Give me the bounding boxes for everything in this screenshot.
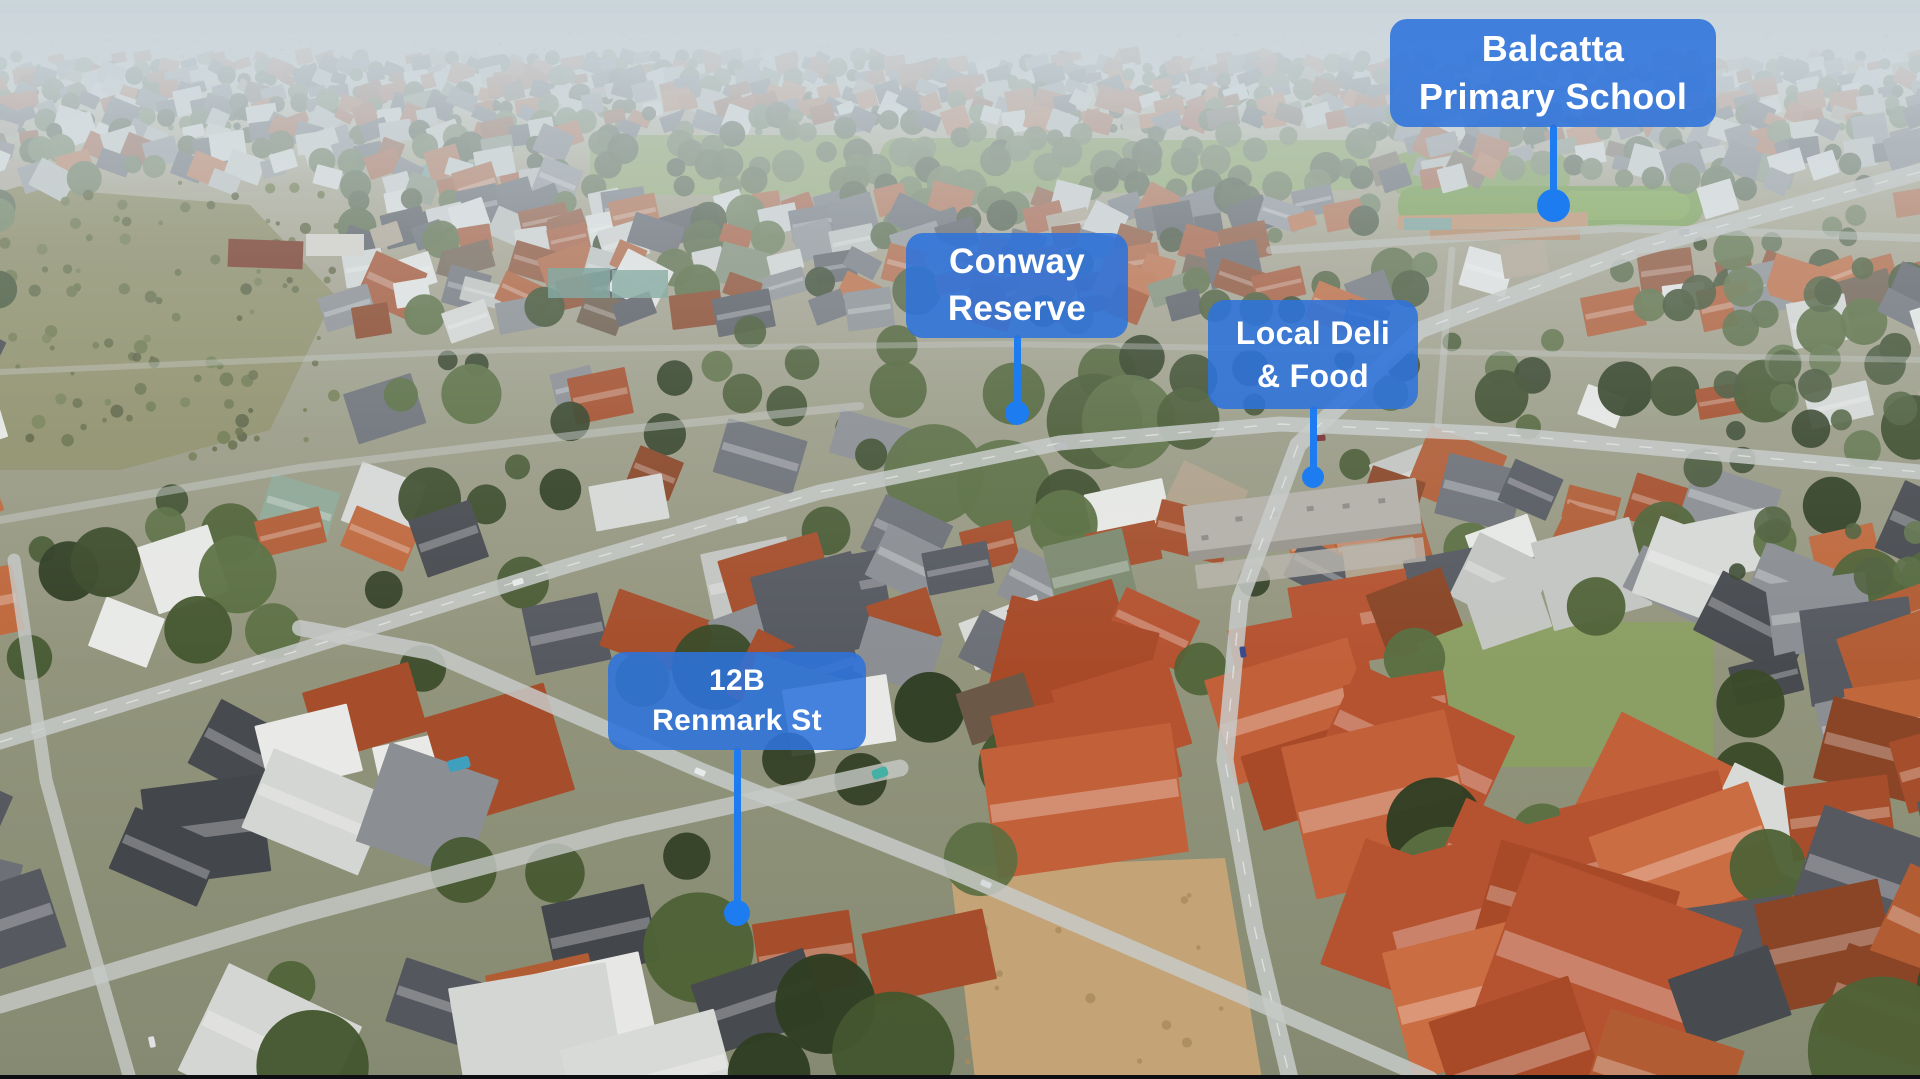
aerial-photo-stage: Balcatta Primary School Conway Reserve L… [0, 0, 1920, 1079]
poi-label-line1: Local Deli [1236, 312, 1390, 354]
poi-marker-dot [1005, 401, 1029, 425]
poi-label-line2: Renmark St [652, 701, 822, 741]
poi-marker-dot [724, 900, 750, 926]
poi-label-line2: Primary School [1419, 73, 1687, 121]
poi-marker-dot [1302, 466, 1324, 488]
aerial-photo-background [0, 0, 1920, 1079]
poi-leader-line [734, 747, 741, 913]
poi-label-line2: & Food [1257, 355, 1369, 397]
poi-label-local-deli-and-food: Local Deli & Food [1208, 300, 1418, 409]
poi-label-balcatta-primary-school: Balcatta Primary School [1390, 19, 1716, 127]
poi-label-line1: Conway [949, 239, 1085, 285]
poi-label-conway-reserve: Conway Reserve [906, 233, 1128, 338]
poi-label-12b-renmark-st: 12B Renmark St [608, 652, 866, 750]
poi-label-line1: Balcatta [1482, 25, 1624, 73]
poi-marker-dot [1537, 189, 1570, 222]
poi-label-line1: 12B [709, 661, 765, 701]
poi-label-line2: Reserve [948, 286, 1086, 332]
